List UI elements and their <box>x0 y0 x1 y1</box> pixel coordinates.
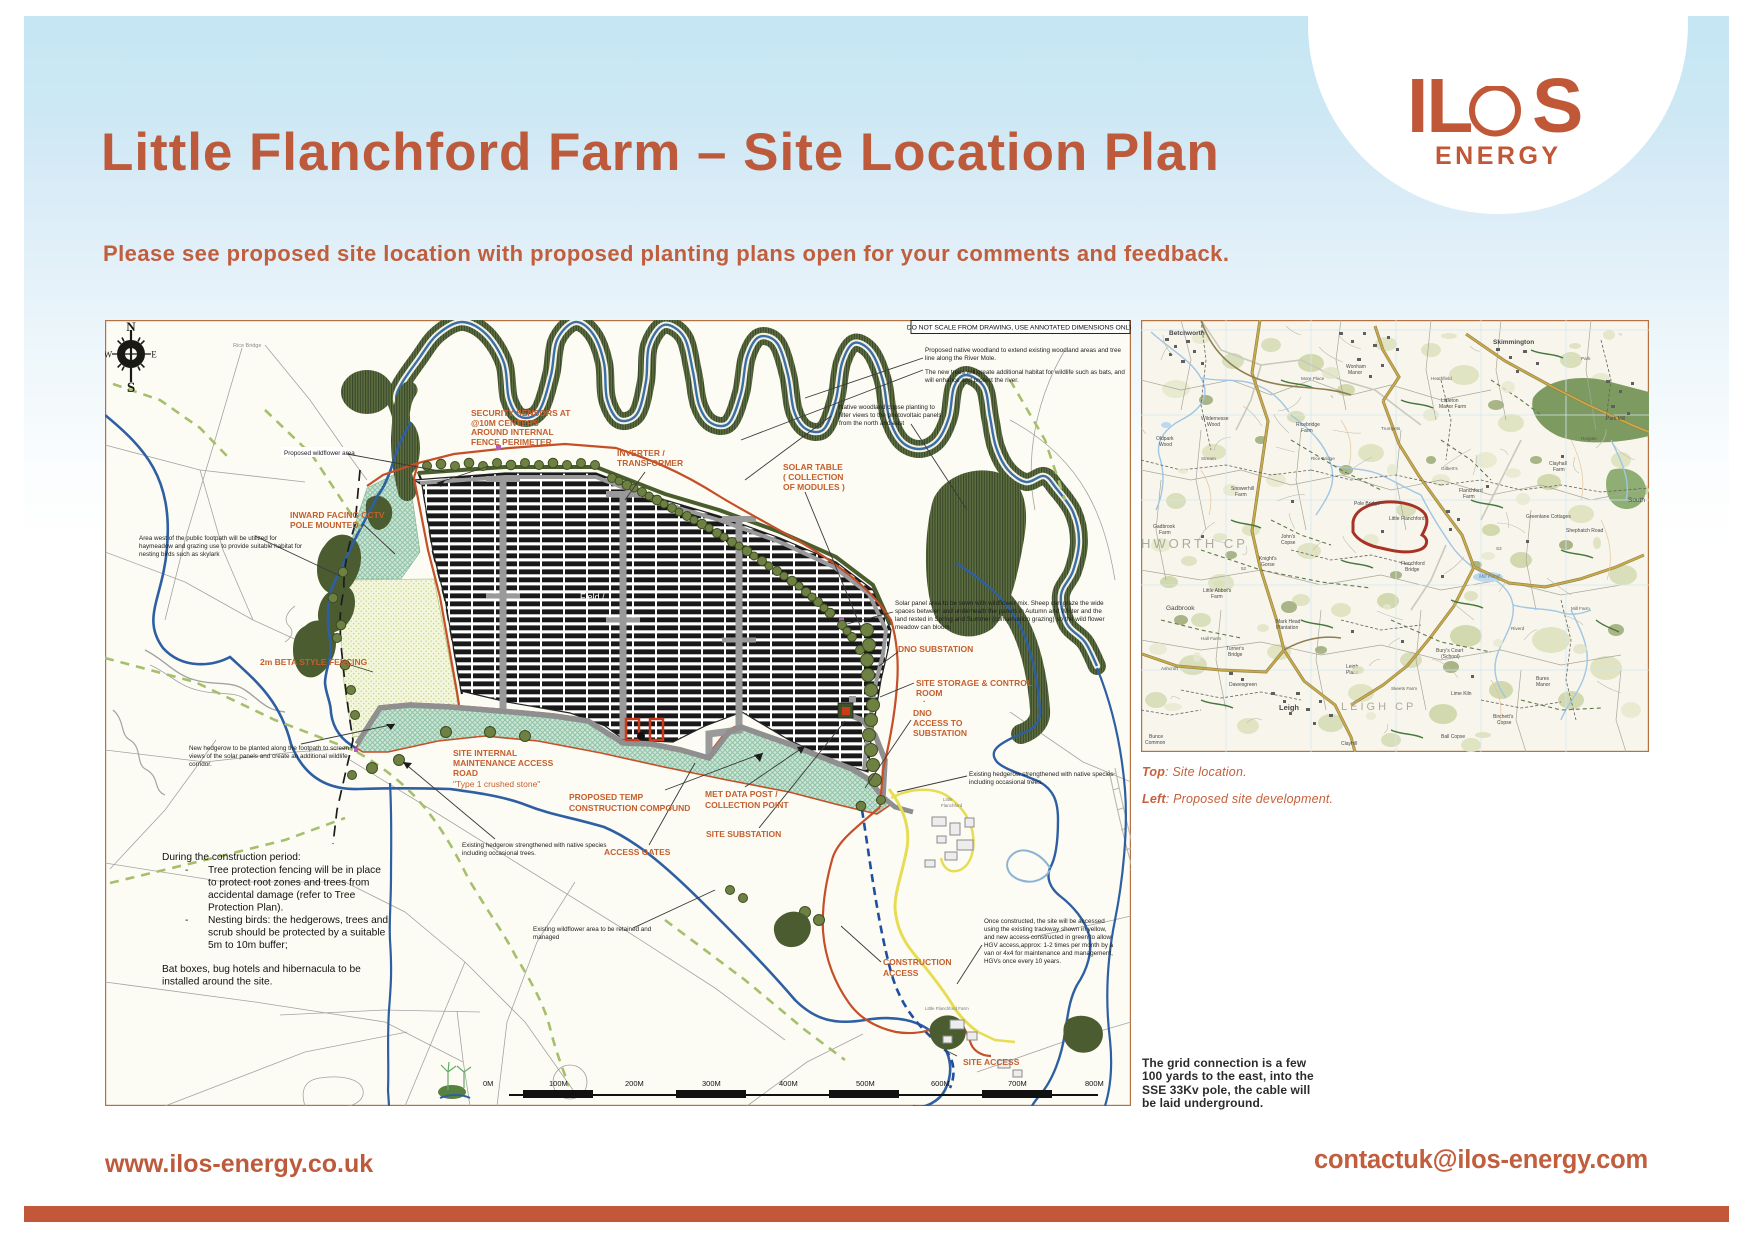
svg-text:PROPOSED TEMP: PROPOSED TEMP <box>569 792 643 802</box>
svg-text:S: S <box>127 380 135 396</box>
svg-text:Field /: Field / <box>580 592 605 602</box>
svg-text:Clayhill: Clayhill <box>1341 741 1357 747</box>
svg-text:Plantation: Plantation <box>1276 625 1298 631</box>
svg-text:MAINTENANCE ACCESS: MAINTENANCE ACCESS <box>453 758 554 768</box>
svg-text:Little Flanchford Farm: Little Flanchford Farm <box>925 1006 969 1011</box>
svg-text:"Type 1 crushed stone": "Type 1 crushed stone" <box>453 779 540 789</box>
svg-text:ACCESS: ACCESS <box>883 968 919 978</box>
svg-text:-: - <box>185 915 188 926</box>
svg-text:Shephatch Road: Shephatch Road <box>1566 528 1603 534</box>
svg-text:W: W <box>105 350 113 360</box>
svg-text:Area west of the public footpa: Area west of the public footpath will be… <box>139 535 277 542</box>
svg-text:During the construction period: During the construction period: <box>162 852 301 863</box>
svg-text:Little Flanchford: Little Flanchford <box>1389 516 1425 522</box>
svg-text:Gilbert's: Gilbert's <box>1441 466 1458 471</box>
svg-text:Native woodland copse planting: Native woodland copse planting to <box>839 404 935 411</box>
svg-text:Reigate: Reigate <box>1581 436 1597 441</box>
svg-text:Rice Bridge: Rice Bridge <box>233 343 261 349</box>
svg-text:scrub should be protected by a: scrub should be protected by a suitable <box>208 928 386 939</box>
svg-text:MET DATA POST /: MET DATA POST / <box>705 789 778 799</box>
svg-text:Tree protection fencing will b: Tree protection fencing will be in place <box>208 865 381 876</box>
svg-text:POLE MOUNTED: POLE MOUNTED <box>290 520 358 530</box>
svg-text:0M: 0M <box>483 1079 493 1088</box>
svg-text:Manor: Manor <box>1348 370 1363 376</box>
svg-text:Existing wildflower area to be: Existing wildflower area to be retained … <box>533 926 652 933</box>
svg-text:INWARD FACING CCTV: INWARD FACING CCTV <box>290 510 385 520</box>
svg-text:including occasional trees.: including occasional trees. <box>969 779 1043 786</box>
svg-text:will enhance and protect the r: will enhance and protect the river. <box>924 377 1019 384</box>
svg-text:and new access constructed in: and new access constructed in green to a… <box>984 934 1112 941</box>
svg-text:line along the River Mole.: line along the River Mole. <box>925 355 996 362</box>
svg-text:Mill Farm: Mill Farm <box>1571 606 1590 611</box>
svg-text:nesting birds such as skylark: nesting birds such as skylark <box>139 551 220 558</box>
svg-text:corridor.: corridor. <box>189 761 212 768</box>
svg-text:SUBSTATION: SUBSTATION <box>913 728 967 738</box>
svg-text:Lime Kiln: Lime Kiln <box>1451 691 1472 697</box>
svg-text:700M: 700M <box>1008 1079 1027 1088</box>
svg-text:Gorse: Gorse <box>1261 562 1275 568</box>
svg-text:N: N <box>126 320 136 334</box>
svg-text:.: . <box>923 694 925 704</box>
svg-text:Farm: Farm <box>1211 594 1223 600</box>
svg-text:Flanchford: Flanchford <box>941 803 963 808</box>
svg-text:600M: 600M <box>931 1079 950 1088</box>
svg-text:Manor: Manor <box>1536 682 1551 688</box>
svg-text:More Place: More Place <box>1301 376 1325 381</box>
svg-text:spaces between and underneath: spaces between and underneath the panels… <box>895 608 1102 615</box>
svg-text:New hedgerow to be planted alo: New hedgerow to be planted along the foo… <box>189 745 349 752</box>
svg-text:Riverd: Riverd <box>1511 626 1525 631</box>
svg-text:ROOM: ROOM <box>916 688 942 698</box>
svg-text:Bridge: Bridge <box>1405 567 1420 573</box>
svg-text:5m to 10m buffer;: 5m to 10m buffer; <box>208 940 288 951</box>
svg-text:Leigh: Leigh <box>1279 703 1299 712</box>
svg-text:Pole Bridge: Pole Bridge <box>1354 501 1380 507</box>
svg-text:filter views to the photovolta: filter views to the photovoltaic panels <box>839 412 942 419</box>
svg-text:Stream: Stream <box>1201 456 1216 461</box>
svg-text:Existing hedgerow strengthened: Existing hedgerow strengthened with nati… <box>969 771 1114 778</box>
svg-text:SITE ACCESS: SITE ACCESS <box>963 1057 1020 1067</box>
svg-text:COLLECTION POINT: COLLECTION POINT <box>705 800 789 810</box>
svg-text:Little: Little <box>943 797 953 802</box>
svg-text:Farm: Farm <box>1553 467 1565 473</box>
svg-text:( COLLECTION: ( COLLECTION <box>783 472 843 482</box>
svg-text:Once constructed, the site wil: Once constructed, the site will be acces… <box>984 918 1105 925</box>
svg-text:Nesting birds: the hedgerows,: Nesting birds: the hedgerows, trees and <box>208 915 388 926</box>
svg-text:views of the solar panels and: views of the solar panels and create an … <box>189 753 348 760</box>
svg-text:Manor Farm: Manor Farm <box>1439 404 1466 410</box>
svg-text:(School): (School) <box>1441 654 1460 660</box>
svg-text:300M: 300M <box>702 1079 721 1088</box>
svg-text:Dawesgreen: Dawesgreen <box>1229 682 1257 688</box>
svg-text:Ashcroft: Ashcroft <box>1161 666 1179 671</box>
svg-text:AROUND INTERNAL: AROUND INTERNAL <box>471 427 554 437</box>
svg-text:Trumpets: Trumpets <box>1381 426 1401 431</box>
svg-text:LEIGH CP: LEIGH CP <box>1341 701 1416 713</box>
svg-text:500M: 500M <box>856 1079 875 1088</box>
svg-text:managed: managed <box>533 934 560 941</box>
svg-text:HGV access,approx: 1-2 times p: HGV access,approx: 1-2 times per month b… <box>984 942 1114 949</box>
svg-text:including occasional trees.: including occasional trees. <box>462 850 536 857</box>
svg-text:The new trees will create add: The new trees will create additional hab… <box>925 369 1125 376</box>
svg-text:Betchworth: Betchworth <box>1169 330 1205 337</box>
svg-text:Farm: Farm <box>1463 494 1475 500</box>
svg-text:2m BETA STYLE FENCING: 2m BETA STYLE FENCING <box>260 657 368 667</box>
svg-text:Park: Park <box>1581 356 1591 361</box>
svg-text:using the existing trackway sh: using the existing trackway shown in yel… <box>984 926 1107 933</box>
svg-text:SOLAR TABLE: SOLAR TABLE <box>783 462 843 472</box>
svg-text:ACCESS GATES: ACCESS GATES <box>604 847 671 857</box>
svg-text:to protect root zones and tree: to protect root zones and trees from <box>208 878 369 889</box>
svg-text:installed around the site.: installed around the site. <box>162 977 272 988</box>
svg-text:Proposed native woodland to ex: Proposed native woodland to extend exist… <box>925 347 1122 354</box>
svg-text:Farm: Farm <box>1301 428 1313 434</box>
svg-text:DNO: DNO <box>913 708 932 718</box>
svg-text:Rice Bridge: Rice Bridge <box>1311 456 1335 461</box>
svg-text:800M: 800M <box>1085 1079 1104 1088</box>
svg-text:SITE INTERNAL: SITE INTERNAL <box>453 748 517 758</box>
svg-text:Farm: Farm <box>1235 492 1247 498</box>
svg-text:Wood: Wood <box>1159 442 1172 448</box>
svg-text:TRANSFORMER: TRANSFORMER <box>617 458 683 468</box>
svg-text:200M: 200M <box>625 1079 644 1088</box>
svg-text:Copse: Copse <box>1281 540 1296 546</box>
svg-text:Bat boxes, bug hotels and hibe: Bat boxes, bug hotels and hibernacula to… <box>162 964 361 975</box>
svg-text:ACCESS TO: ACCESS TO <box>913 718 963 728</box>
svg-text:400M: 400M <box>779 1079 798 1088</box>
svg-text:-: - <box>185 865 188 876</box>
svg-text:Solar panel area to be sown w: Solar panel area to be sown with wildflo… <box>895 600 1104 607</box>
svg-text:Common: Common <box>1145 740 1166 746</box>
svg-text:52: 52 <box>1241 566 1247 571</box>
svg-text:CONSTRUCTION COMPOUND: CONSTRUCTION COMPOUND <box>569 803 690 813</box>
svg-text:van or 4x4 for maintenance and: van or 4x4 for maintenance and managemen… <box>984 950 1113 957</box>
svg-text:CONSTRUCTION: CONSTRUCTION <box>883 957 951 967</box>
svg-text:Mill Pond: Mill Pond <box>1479 574 1500 580</box>
svg-text:Greenlane Cottages: Greenlane Cottages <box>1526 514 1571 520</box>
svg-text:HWORTH CP: HWORTH CP <box>1141 536 1248 551</box>
svg-text:Proposed wildflower area: Proposed wildflower area <box>284 450 355 457</box>
svg-text:Gadbrook: Gadbrook <box>1166 605 1195 612</box>
svg-text:meadow can bloom.: meadow can bloom. <box>895 624 952 631</box>
svg-text:SITE STORAGE & CONTROL: SITE STORAGE & CONTROL <box>916 678 1032 688</box>
svg-text:INVERTER /: INVERTER / <box>617 448 665 458</box>
svg-text:HGVs once every 10 years.: HGVs once every 10 years. <box>984 958 1061 965</box>
svg-text:ROAD: ROAD <box>453 768 478 778</box>
svg-text:DNO SUBSTATION: DNO SUBSTATION <box>898 644 973 654</box>
svg-text:South: South <box>1628 497 1645 504</box>
svg-text:haymeadow and grazing use to p: haymeadow and grazing use to provide sui… <box>139 543 302 550</box>
svg-text:land rested in Spring and Summ: land rested in Spring and Summer (conser… <box>895 616 1105 623</box>
svg-text:DO NOT SCALE FROM DRAWING, USE: DO NOT SCALE FROM DRAWING, USE ANNOTATED… <box>907 325 1131 332</box>
svg-text:FENCE PERIMETER: FENCE PERIMETER <box>471 437 552 447</box>
svg-text:from the north and east: from the north and east <box>839 420 904 427</box>
svg-text:Heathfield: Heathfield <box>1431 376 1452 381</box>
svg-text:100M: 100M <box>549 1079 568 1088</box>
svg-text:Protection Plan).: Protection Plan). <box>208 903 283 914</box>
svg-text:OF MODULES ): OF MODULES ) <box>783 482 845 492</box>
svg-text:Bridge: Bridge <box>1228 652 1243 658</box>
svg-text:Hall Farm: Hall Farm <box>1201 636 1221 641</box>
svg-text:E: E <box>151 350 157 360</box>
svg-text:SECURITY SENSORS AT: SECURITY SENSORS AT <box>471 408 571 418</box>
svg-text:Skeets Farm: Skeets Farm <box>1391 686 1417 691</box>
svg-text:Copse: Copse <box>1497 720 1512 726</box>
svg-text:Park Mill: Park Mill <box>1606 416 1625 422</box>
svg-text:SITE SUBSTATION: SITE SUBSTATION <box>706 829 781 839</box>
svg-text:Ball Copse: Ball Copse <box>1441 734 1465 740</box>
svg-text:Wood: Wood <box>1207 422 1220 428</box>
svg-text:Existing hedgerow strengthened: Existing hedgerow strengthened with nati… <box>462 842 607 849</box>
svg-text:Skimmington: Skimmington <box>1493 339 1534 346</box>
svg-text:accidental damage (refer to Tr: accidental damage (refer to Tree <box>208 890 356 901</box>
svg-text:S2: S2 <box>1496 546 1502 551</box>
